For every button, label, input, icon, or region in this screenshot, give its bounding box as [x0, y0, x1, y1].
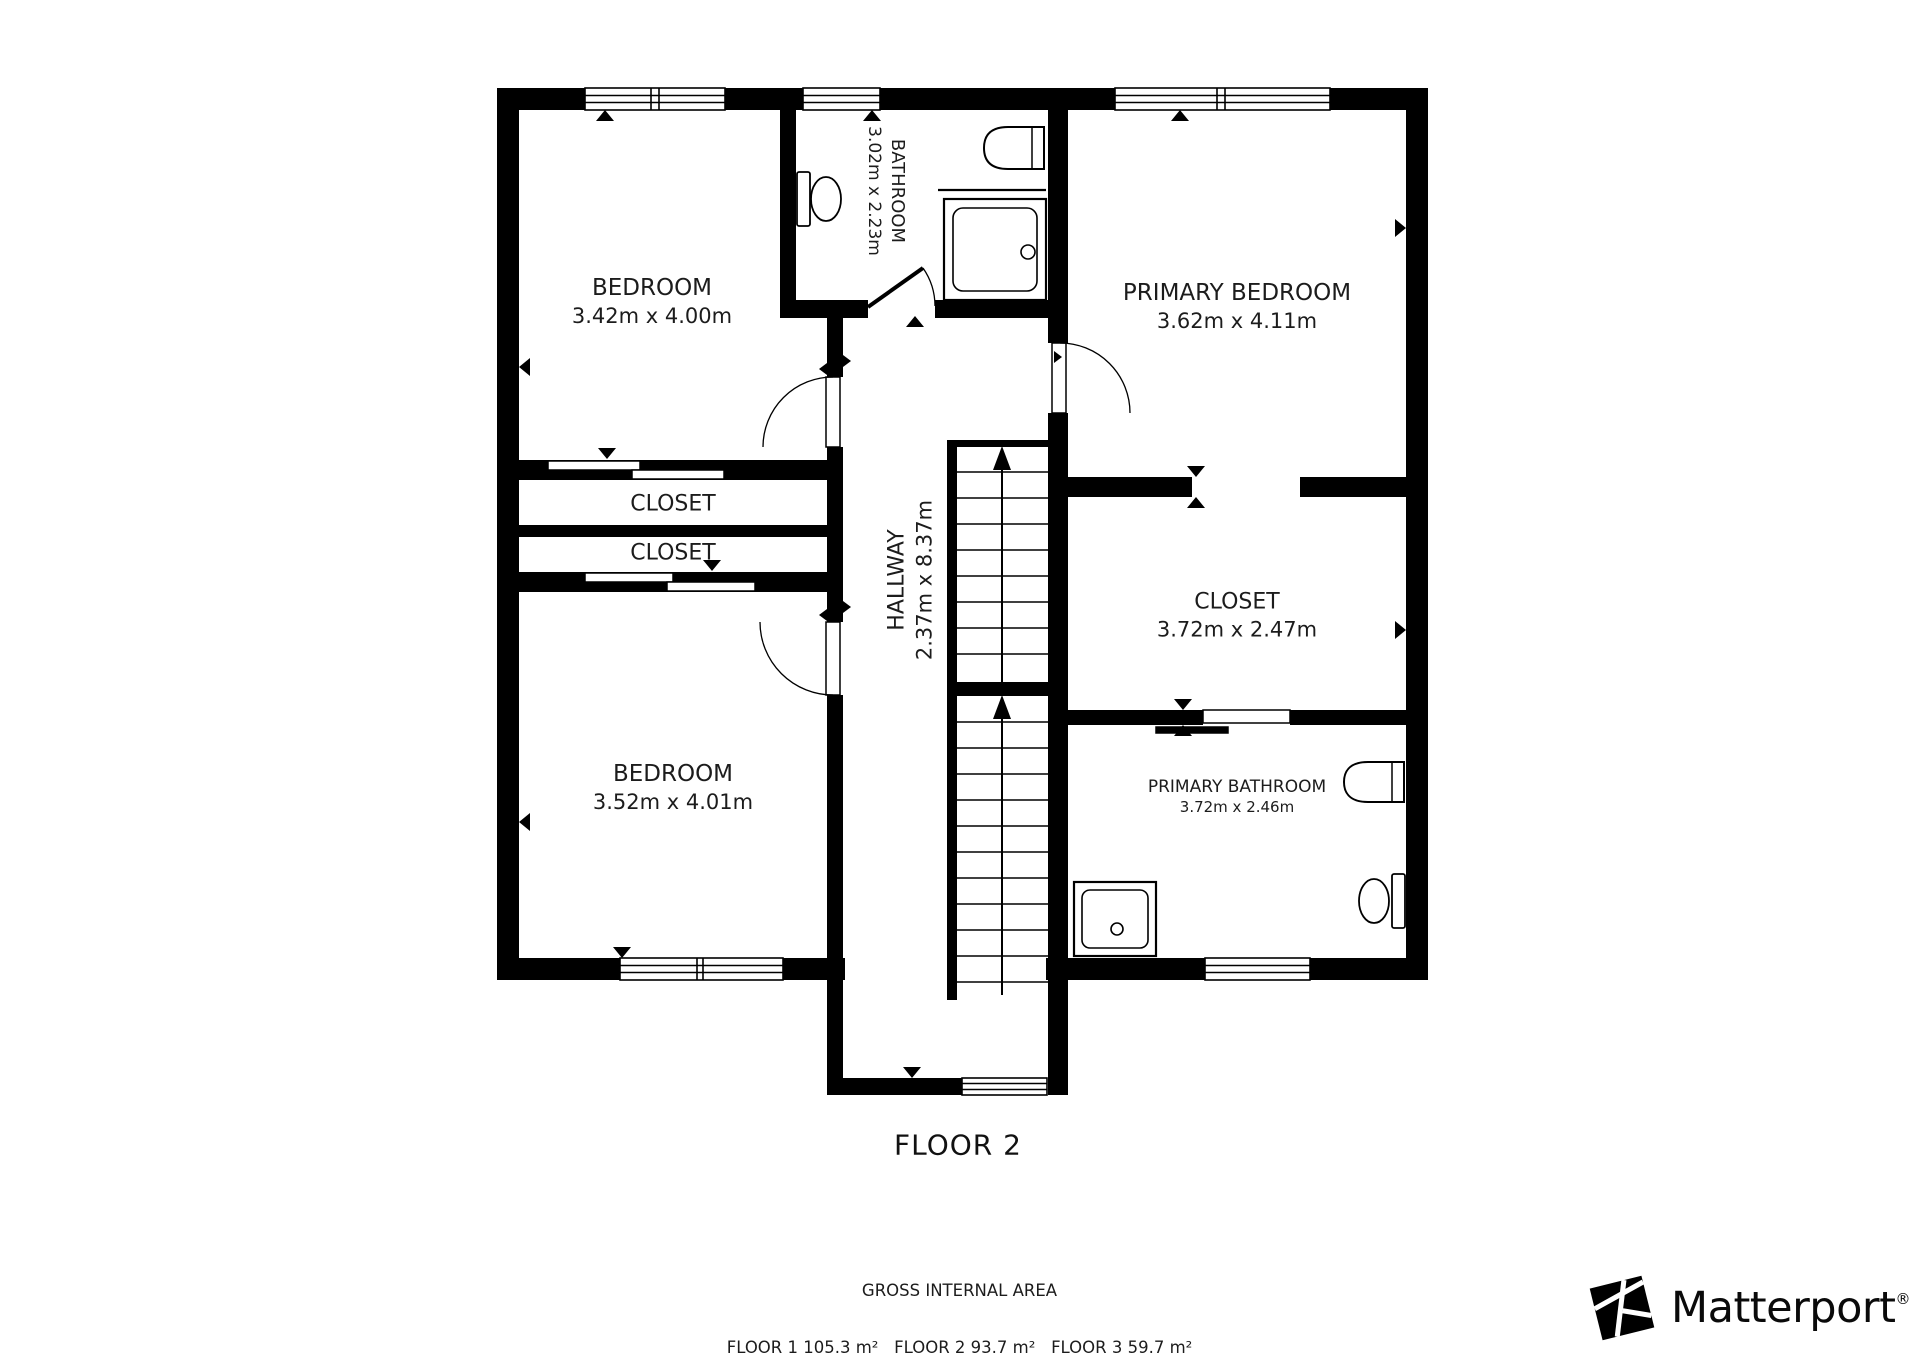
room-name: PRIMARY BATHROOM [1148, 776, 1326, 798]
brand-wordmark: Matterport [1671, 1283, 1895, 1333]
door-primary-bedroom [1052, 343, 1130, 413]
window [1115, 88, 1330, 110]
room-name: PRIMARY BEDROOM [1123, 278, 1351, 308]
window [585, 88, 725, 110]
toilet-icon [1359, 874, 1405, 928]
shower-icon [1074, 882, 1156, 956]
stair-direction-arrows [993, 446, 1011, 995]
window [962, 1078, 1047, 1095]
bathroom-fixtures [797, 127, 1046, 300]
floor-plan-page: BEDROOM 3.42m x 4.00m BATHROOM 3.02m x 2… [0, 0, 1919, 1357]
room-name: BEDROOM [572, 273, 732, 303]
room-label-bedroom-bottom: BEDROOM 3.52m x 4.01m [593, 759, 753, 817]
room-label-closet-right: CLOSET 3.72m x 2.47m [1157, 588, 1317, 645]
room-label-hallway: HALLWAY 2.37m x 8.37m [883, 500, 940, 660]
room-dims: 3.62m x 4.11m [1123, 308, 1351, 336]
room-dims: 3.72m x 2.47m [1157, 617, 1317, 645]
room-label-primary-bathroom: PRIMARY BATHROOM 3.72m x 2.46m [1148, 776, 1326, 818]
room-dims: 2.37m x 8.37m [912, 500, 940, 660]
room-dims: 3.72m x 2.46m [1148, 798, 1326, 818]
room-name: CLOSET [630, 538, 715, 567]
bathtub-icon [984, 127, 1044, 169]
room-label-primary-bedroom: PRIMARY BEDROOM 3.62m x 4.11m [1123, 278, 1351, 336]
bathtub-icon [1344, 762, 1404, 802]
room-label-bathroom: BATHROOM 3.02m x 2.23m [863, 126, 909, 256]
room-label-closet-b: CLOSET [630, 538, 715, 567]
matterport-pinwheel-icon [1586, 1272, 1658, 1344]
matterport-branding: Matterport® [1586, 1272, 1910, 1344]
registered-trademark-symbol: ® [1895, 1290, 1910, 1308]
window [803, 88, 880, 110]
door-bedroom-bottom [760, 622, 840, 695]
shower-icon [938, 190, 1046, 300]
room-dims: 3.52m x 4.01m [593, 789, 753, 817]
room-name: BATHROOM [885, 126, 909, 256]
room-label-bedroom-top: BEDROOM 3.42m x 4.00m [572, 273, 732, 331]
door-bathroom [868, 268, 935, 307]
room-label-closet-a: CLOSET [630, 489, 715, 518]
floor-title: FLOOR 2 [894, 1129, 1022, 1162]
room-name: HALLWAY [883, 500, 912, 660]
room-name: BEDROOM [593, 759, 753, 789]
room-dims: 3.02m x 2.23m [863, 126, 885, 256]
room-name: CLOSET [1157, 588, 1317, 617]
window [1205, 958, 1310, 980]
toilet-icon [797, 172, 841, 226]
room-dims: 3.42m x 4.00m [572, 303, 732, 331]
window [620, 958, 783, 980]
room-name: CLOSET [630, 489, 715, 518]
door-bedroom-top [763, 377, 840, 447]
